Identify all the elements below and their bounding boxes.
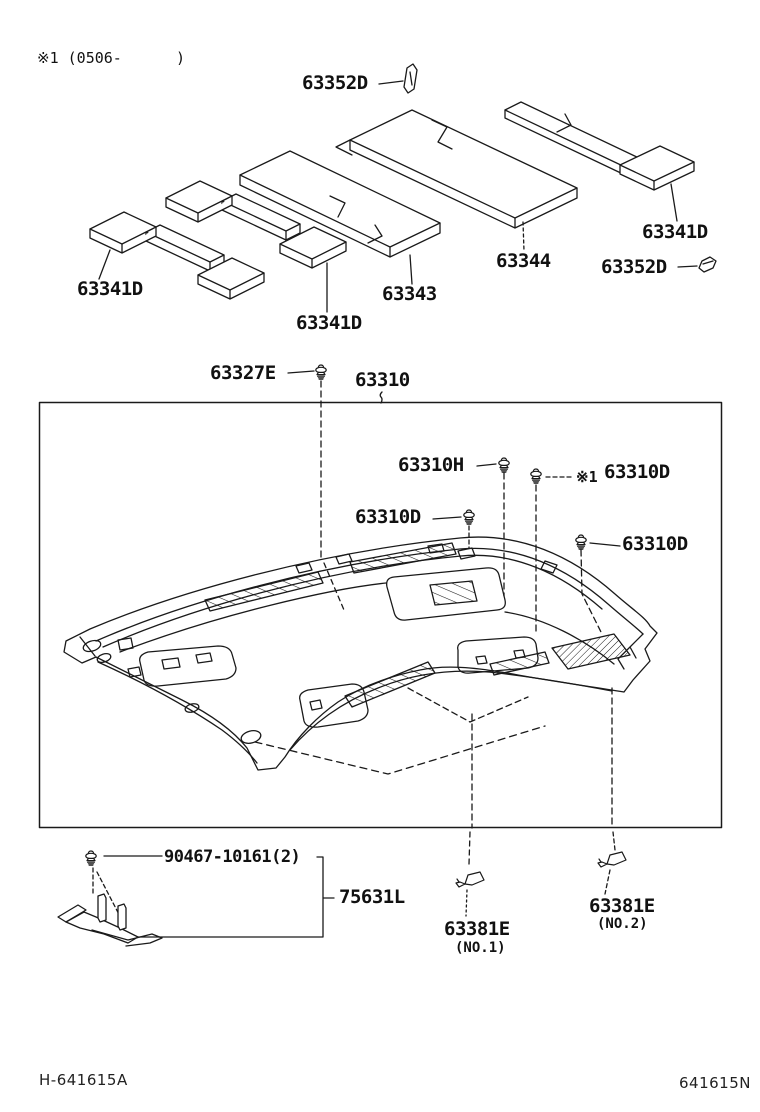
part-label-63381e-no1: 63381E: [444, 920, 510, 939]
note-top: ※1 (0506- ): [37, 49, 185, 67]
figure-code-left: H-641615A: [39, 1071, 128, 1089]
bracket-75631l: [138, 857, 334, 937]
clip-63352d-right: [699, 257, 716, 272]
dash-63381e-no1: [469, 832, 470, 864]
clip-63310d-right: [576, 535, 586, 549]
part-label-63352d-right: 63352D: [601, 258, 667, 277]
part-label-75631l: 75631L: [339, 888, 405, 907]
part-label-63381e-no2: 63381E: [589, 897, 655, 916]
part-label-90467: 90467-10161(2): [164, 849, 300, 866]
part-label-63343: 63343: [382, 285, 437, 304]
leader-63310d-left: [433, 517, 461, 519]
diagram-canvas: [0, 0, 760, 1112]
leader-63327e: [288, 371, 314, 373]
dash-63310d-right: [581, 550, 601, 632]
dash-63381e-no2: [613, 832, 615, 850]
part-label-63310h: 63310H: [398, 456, 464, 475]
part-label-63310d-ref: 63310D: [604, 463, 670, 482]
leader-63310d-right: [590, 543, 620, 546]
figure-code-right: 641615N: [679, 1074, 751, 1092]
clip-63381e-no2: [598, 852, 626, 867]
dot-63381e-no1: [466, 890, 467, 916]
visor-holder-75631l-drawing: [58, 894, 162, 946]
clip-63352d-top: [404, 64, 417, 93]
clip-90467: [86, 851, 96, 865]
clip-63310d-left: [464, 510, 474, 524]
part-label-63327e: 63327E: [210, 364, 276, 383]
part-label-63352d-top: 63352D: [302, 74, 368, 93]
ref-mark-1: ※1: [576, 468, 598, 486]
squiggle-63310: [380, 392, 382, 403]
part-label-63341d-mid: 63341D: [296, 314, 362, 333]
parts-diagram-page: ※1 (0506- ) 63352D 63341D 63341D 63343 6…: [0, 0, 760, 1112]
part-label-63310: 63310: [355, 371, 410, 390]
part-label-63310d-left: 63310D: [355, 508, 421, 527]
rail-tab-detail: [458, 548, 475, 559]
part-sublabel-no1: (NO.1): [455, 941, 506, 955]
part-label-63341d-right: 63341D: [642, 223, 708, 242]
clip-63327e: [316, 365, 326, 379]
clip-63310d-ref: [531, 469, 541, 483]
hidden-edge-dashes: [255, 688, 612, 828]
dash-63381e-no2b: [605, 870, 610, 894]
part-label-63344: 63344: [496, 252, 551, 271]
clip-63381e-no1: [456, 872, 484, 887]
leader-63310h: [477, 464, 496, 466]
part-label-63341d-left: 63341D: [77, 280, 143, 299]
part-sublabel-no2: (NO.2): [597, 917, 648, 931]
part-label-63310d-right: 63310D: [622, 535, 688, 554]
clip-63310h: [499, 458, 509, 472]
headlining-63310-drawing: [64, 537, 657, 770]
